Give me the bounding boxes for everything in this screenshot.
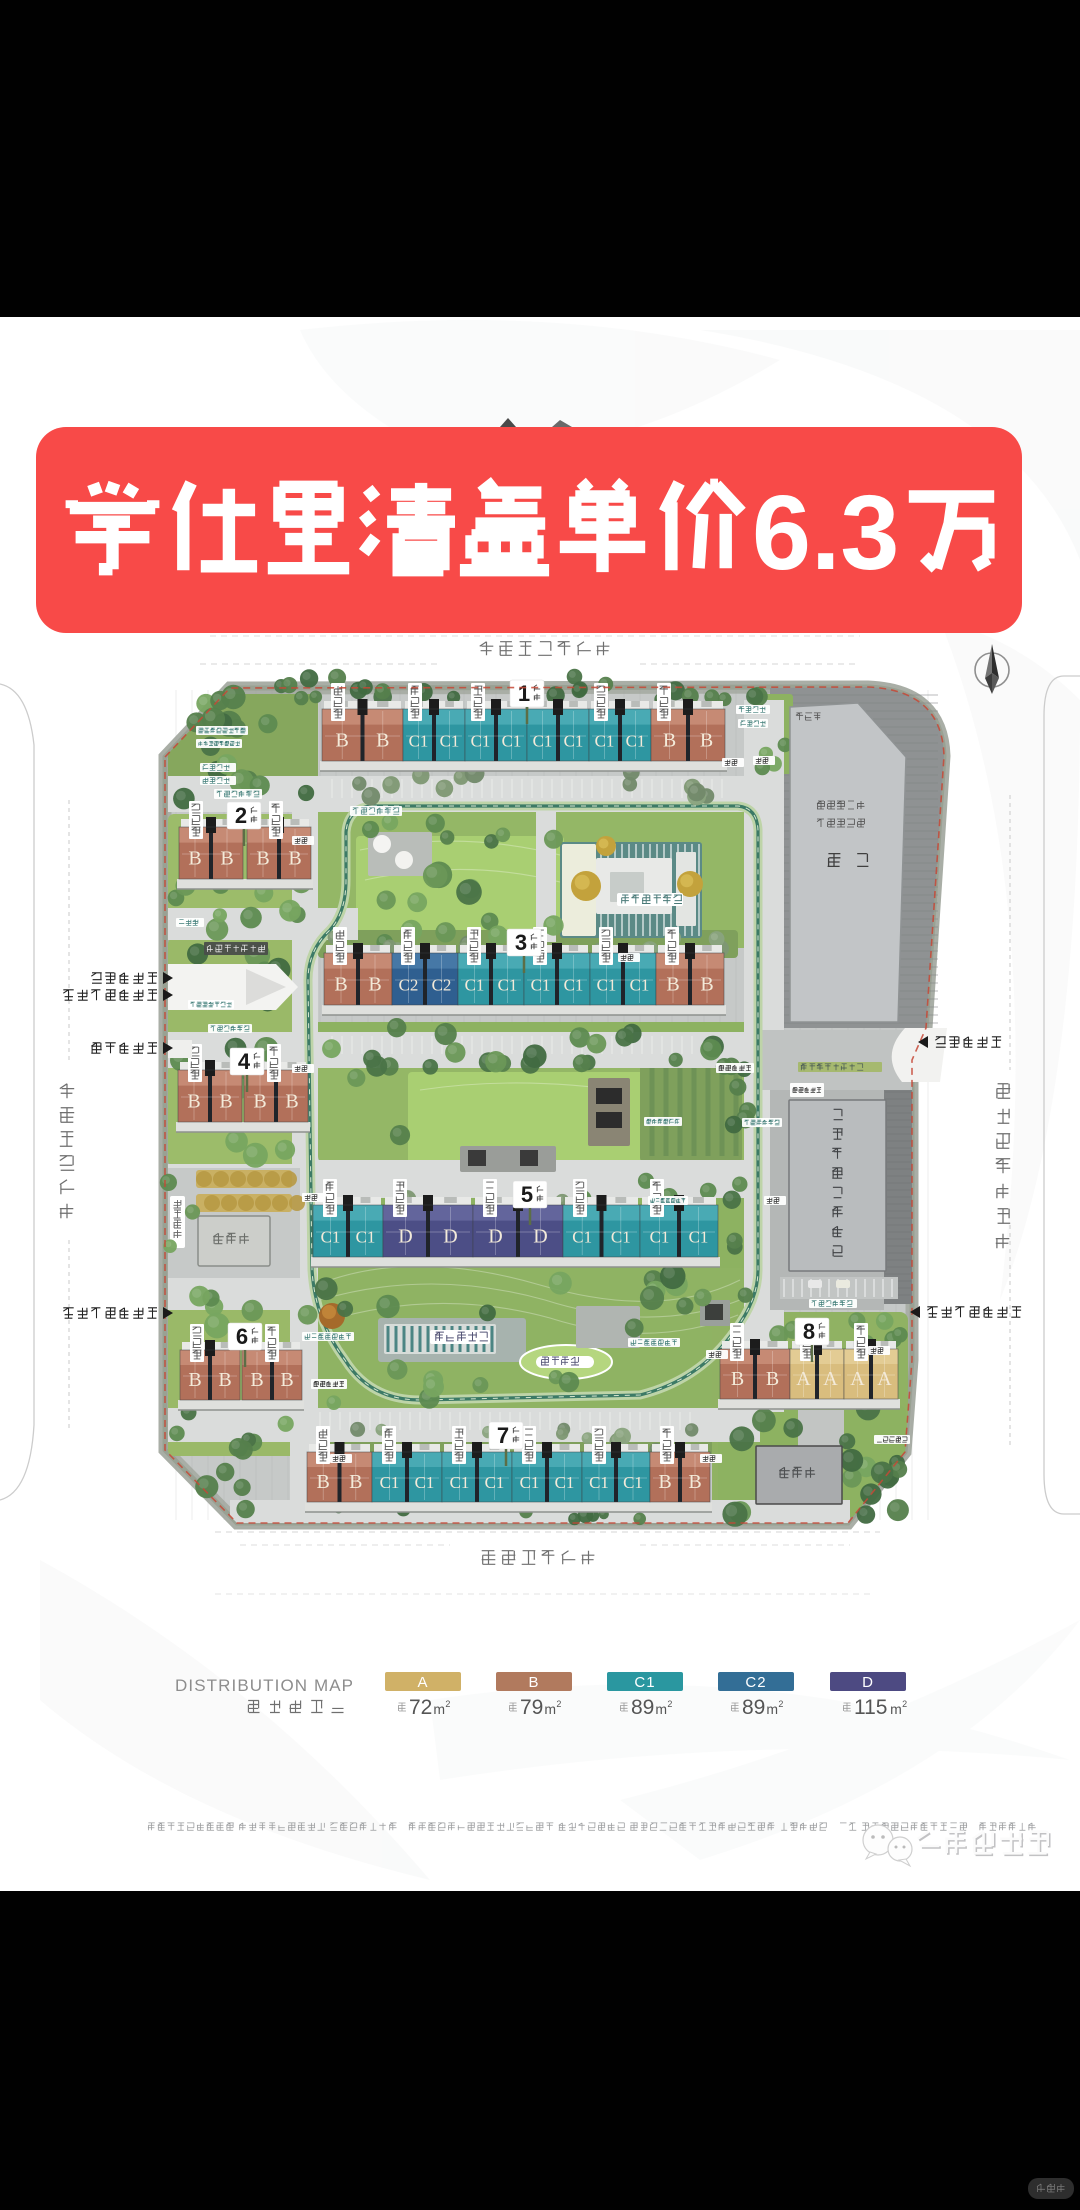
svg-text:B: B <box>700 973 713 995</box>
svg-text:m: m <box>890 1701 902 1717</box>
svg-text:1: 1 <box>518 681 530 706</box>
svg-text:6.3: 6.3 <box>752 474 899 592</box>
svg-text:A: A <box>850 1368 865 1390</box>
svg-text:C1: C1 <box>634 1674 655 1691</box>
svg-text:B: B <box>349 1471 362 1493</box>
svg-text:m: m <box>544 1701 556 1717</box>
svg-text:C2: C2 <box>745 1674 766 1691</box>
svg-text:B: B <box>188 847 201 869</box>
svg-text:C1: C1 <box>531 975 551 994</box>
svg-text:2: 2 <box>667 1699 672 1709</box>
svg-text:2: 2 <box>778 1699 783 1709</box>
svg-text:m: m <box>766 1701 778 1717</box>
svg-text:C1: C1 <box>572 1227 592 1246</box>
svg-text:B: B <box>253 1090 266 1112</box>
svg-text:C1: C1 <box>689 1227 709 1246</box>
svg-text:B: B <box>256 847 269 869</box>
svg-text:89: 89 <box>742 1696 765 1719</box>
svg-text:B: B <box>731 1368 744 1390</box>
svg-text:89: 89 <box>631 1696 654 1719</box>
svg-text:C1: C1 <box>502 731 522 750</box>
svg-text:D: D <box>533 1225 547 1247</box>
svg-text:B: B <box>280 1369 293 1391</box>
svg-text:C1: C1 <box>595 731 615 750</box>
svg-text:B: B <box>700 729 713 751</box>
svg-text:D: D <box>443 1225 457 1247</box>
svg-text:B: B <box>317 1471 330 1493</box>
svg-text:B: B <box>285 1090 298 1112</box>
svg-text:B: B <box>219 1090 232 1112</box>
svg-text:A: A <box>877 1368 892 1390</box>
svg-text:C1: C1 <box>623 1473 643 1492</box>
svg-text:C1: C1 <box>589 1473 609 1492</box>
svg-text:C1: C1 <box>498 975 518 994</box>
svg-text:B: B <box>376 729 389 751</box>
svg-text:C1: C1 <box>533 731 553 750</box>
svg-text:C1: C1 <box>440 731 460 750</box>
svg-text:C1: C1 <box>485 1473 505 1492</box>
svg-text:C1: C1 <box>626 731 646 750</box>
svg-text:4: 4 <box>238 1049 251 1074</box>
svg-text:B: B <box>187 1090 200 1112</box>
svg-text:2: 2 <box>445 1699 450 1709</box>
svg-text:B: B <box>336 729 349 751</box>
svg-text:C1: C1 <box>450 1473 470 1492</box>
svg-text:C1: C1 <box>471 731 491 750</box>
svg-text:B: B <box>528 1674 539 1691</box>
svg-text:D: D <box>862 1674 874 1691</box>
svg-text:C1: C1 <box>630 975 650 994</box>
svg-text:2: 2 <box>235 803 247 828</box>
svg-text:B: B <box>666 973 679 995</box>
svg-text:C2: C2 <box>399 975 419 994</box>
svg-text:79: 79 <box>520 1696 543 1719</box>
svg-text:B: B <box>218 1369 231 1391</box>
svg-text:7: 7 <box>497 1423 509 1448</box>
svg-text:m: m <box>433 1701 445 1717</box>
svg-text:C1: C1 <box>356 1227 376 1246</box>
svg-text:B: B <box>250 1369 263 1391</box>
svg-text:D: D <box>398 1225 412 1247</box>
svg-text:B: B <box>220 847 233 869</box>
svg-text:C1: C1 <box>564 975 584 994</box>
svg-text:C1: C1 <box>520 1473 540 1492</box>
svg-text:2: 2 <box>902 1699 907 1709</box>
svg-text:C1: C1 <box>409 731 429 750</box>
svg-text:D: D <box>488 1225 502 1247</box>
svg-text:6: 6 <box>236 1324 248 1349</box>
svg-text:B: B <box>658 1471 671 1493</box>
svg-text:B: B <box>188 1369 201 1391</box>
svg-text:C1: C1 <box>380 1473 400 1492</box>
svg-text:115: 115 <box>854 1696 887 1719</box>
svg-text:A: A <box>823 1368 838 1390</box>
svg-text:C1: C1 <box>564 731 584 750</box>
svg-text:5: 5 <box>521 1182 533 1207</box>
svg-text:B: B <box>334 973 347 995</box>
svg-text:C1: C1 <box>650 1227 670 1246</box>
svg-text:3: 3 <box>515 930 527 955</box>
svg-text:A: A <box>417 1674 428 1691</box>
svg-text:A: A <box>796 1368 811 1390</box>
svg-text:DISTRIBUTION MAP: DISTRIBUTION MAP <box>175 1676 354 1695</box>
svg-text:C1: C1 <box>611 1227 631 1246</box>
svg-text:C1: C1 <box>555 1473 575 1492</box>
svg-text:C2: C2 <box>432 975 452 994</box>
svg-text:C1: C1 <box>321 1227 341 1246</box>
svg-text:B: B <box>368 973 381 995</box>
svg-text:C1: C1 <box>415 1473 435 1492</box>
svg-text:2: 2 <box>556 1699 561 1709</box>
svg-text:C1: C1 <box>465 975 485 994</box>
svg-text:B: B <box>288 847 301 869</box>
svg-text:B: B <box>766 1368 779 1390</box>
svg-text:B: B <box>688 1471 701 1493</box>
svg-text:B: B <box>663 729 676 751</box>
svg-text:C1: C1 <box>597 975 617 994</box>
svg-text:72: 72 <box>409 1696 432 1719</box>
svg-text:m: m <box>655 1701 667 1717</box>
svg-text:8: 8 <box>803 1319 815 1344</box>
